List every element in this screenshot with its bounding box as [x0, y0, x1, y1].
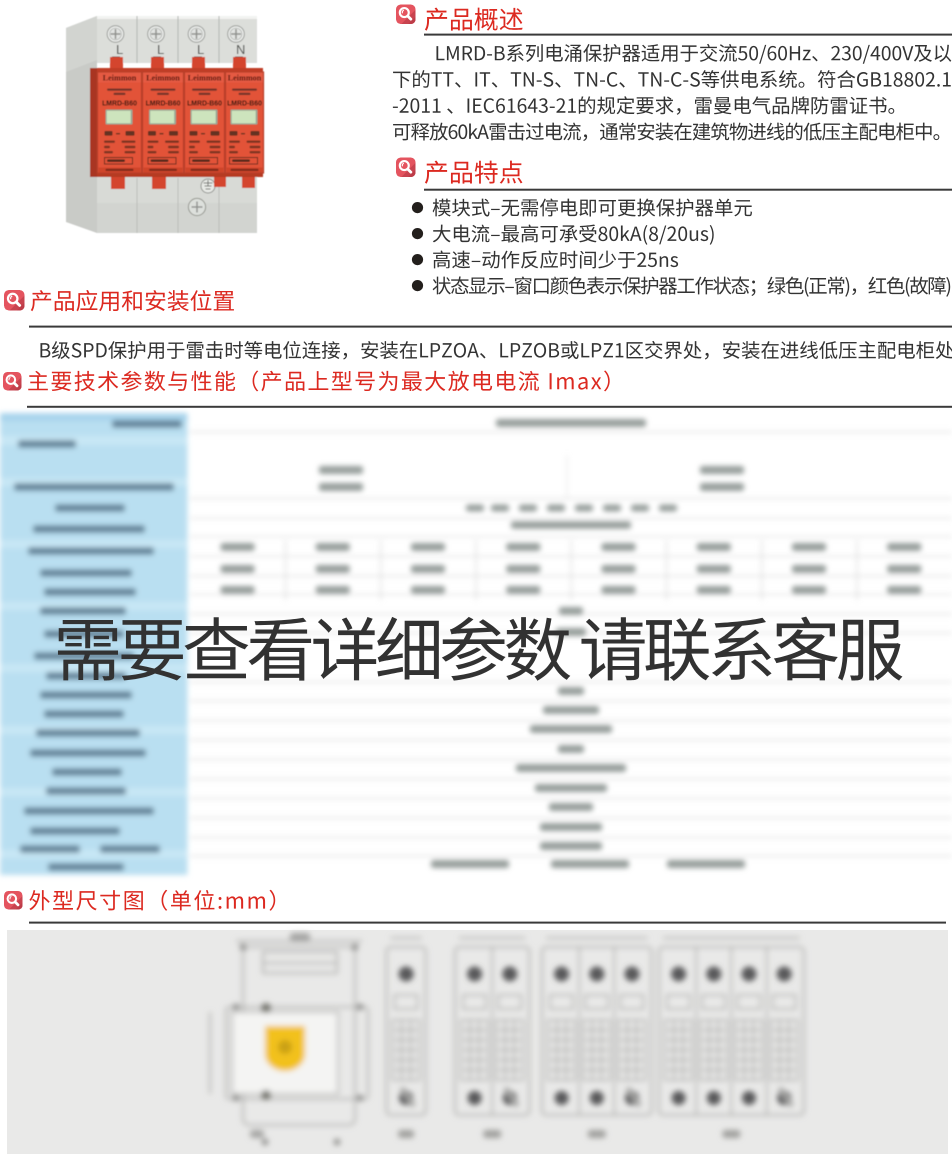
- svg-text:LMRD-B60: LMRD-B60: [227, 101, 262, 108]
- svg-text:LMRD-B60: LMRD-B60: [102, 101, 137, 108]
- svg-text:Leimmon: Leimmon: [188, 74, 222, 83]
- svg-text:Leimmon: Leimmon: [103, 74, 137, 83]
- svg-text:L: L: [157, 42, 164, 57]
- svg-text:Leimmon: Leimmon: [146, 74, 180, 83]
- svg-text:LMRD-B60: LMRD-B60: [146, 101, 181, 108]
- svg-text:N: N: [236, 42, 245, 57]
- svg-text:LMRD-B60: LMRD-B60: [187, 101, 222, 108]
- svg-text:L: L: [197, 42, 204, 57]
- svg-text:L: L: [116, 42, 123, 57]
- svg-text:Leimmon: Leimmon: [228, 74, 262, 83]
